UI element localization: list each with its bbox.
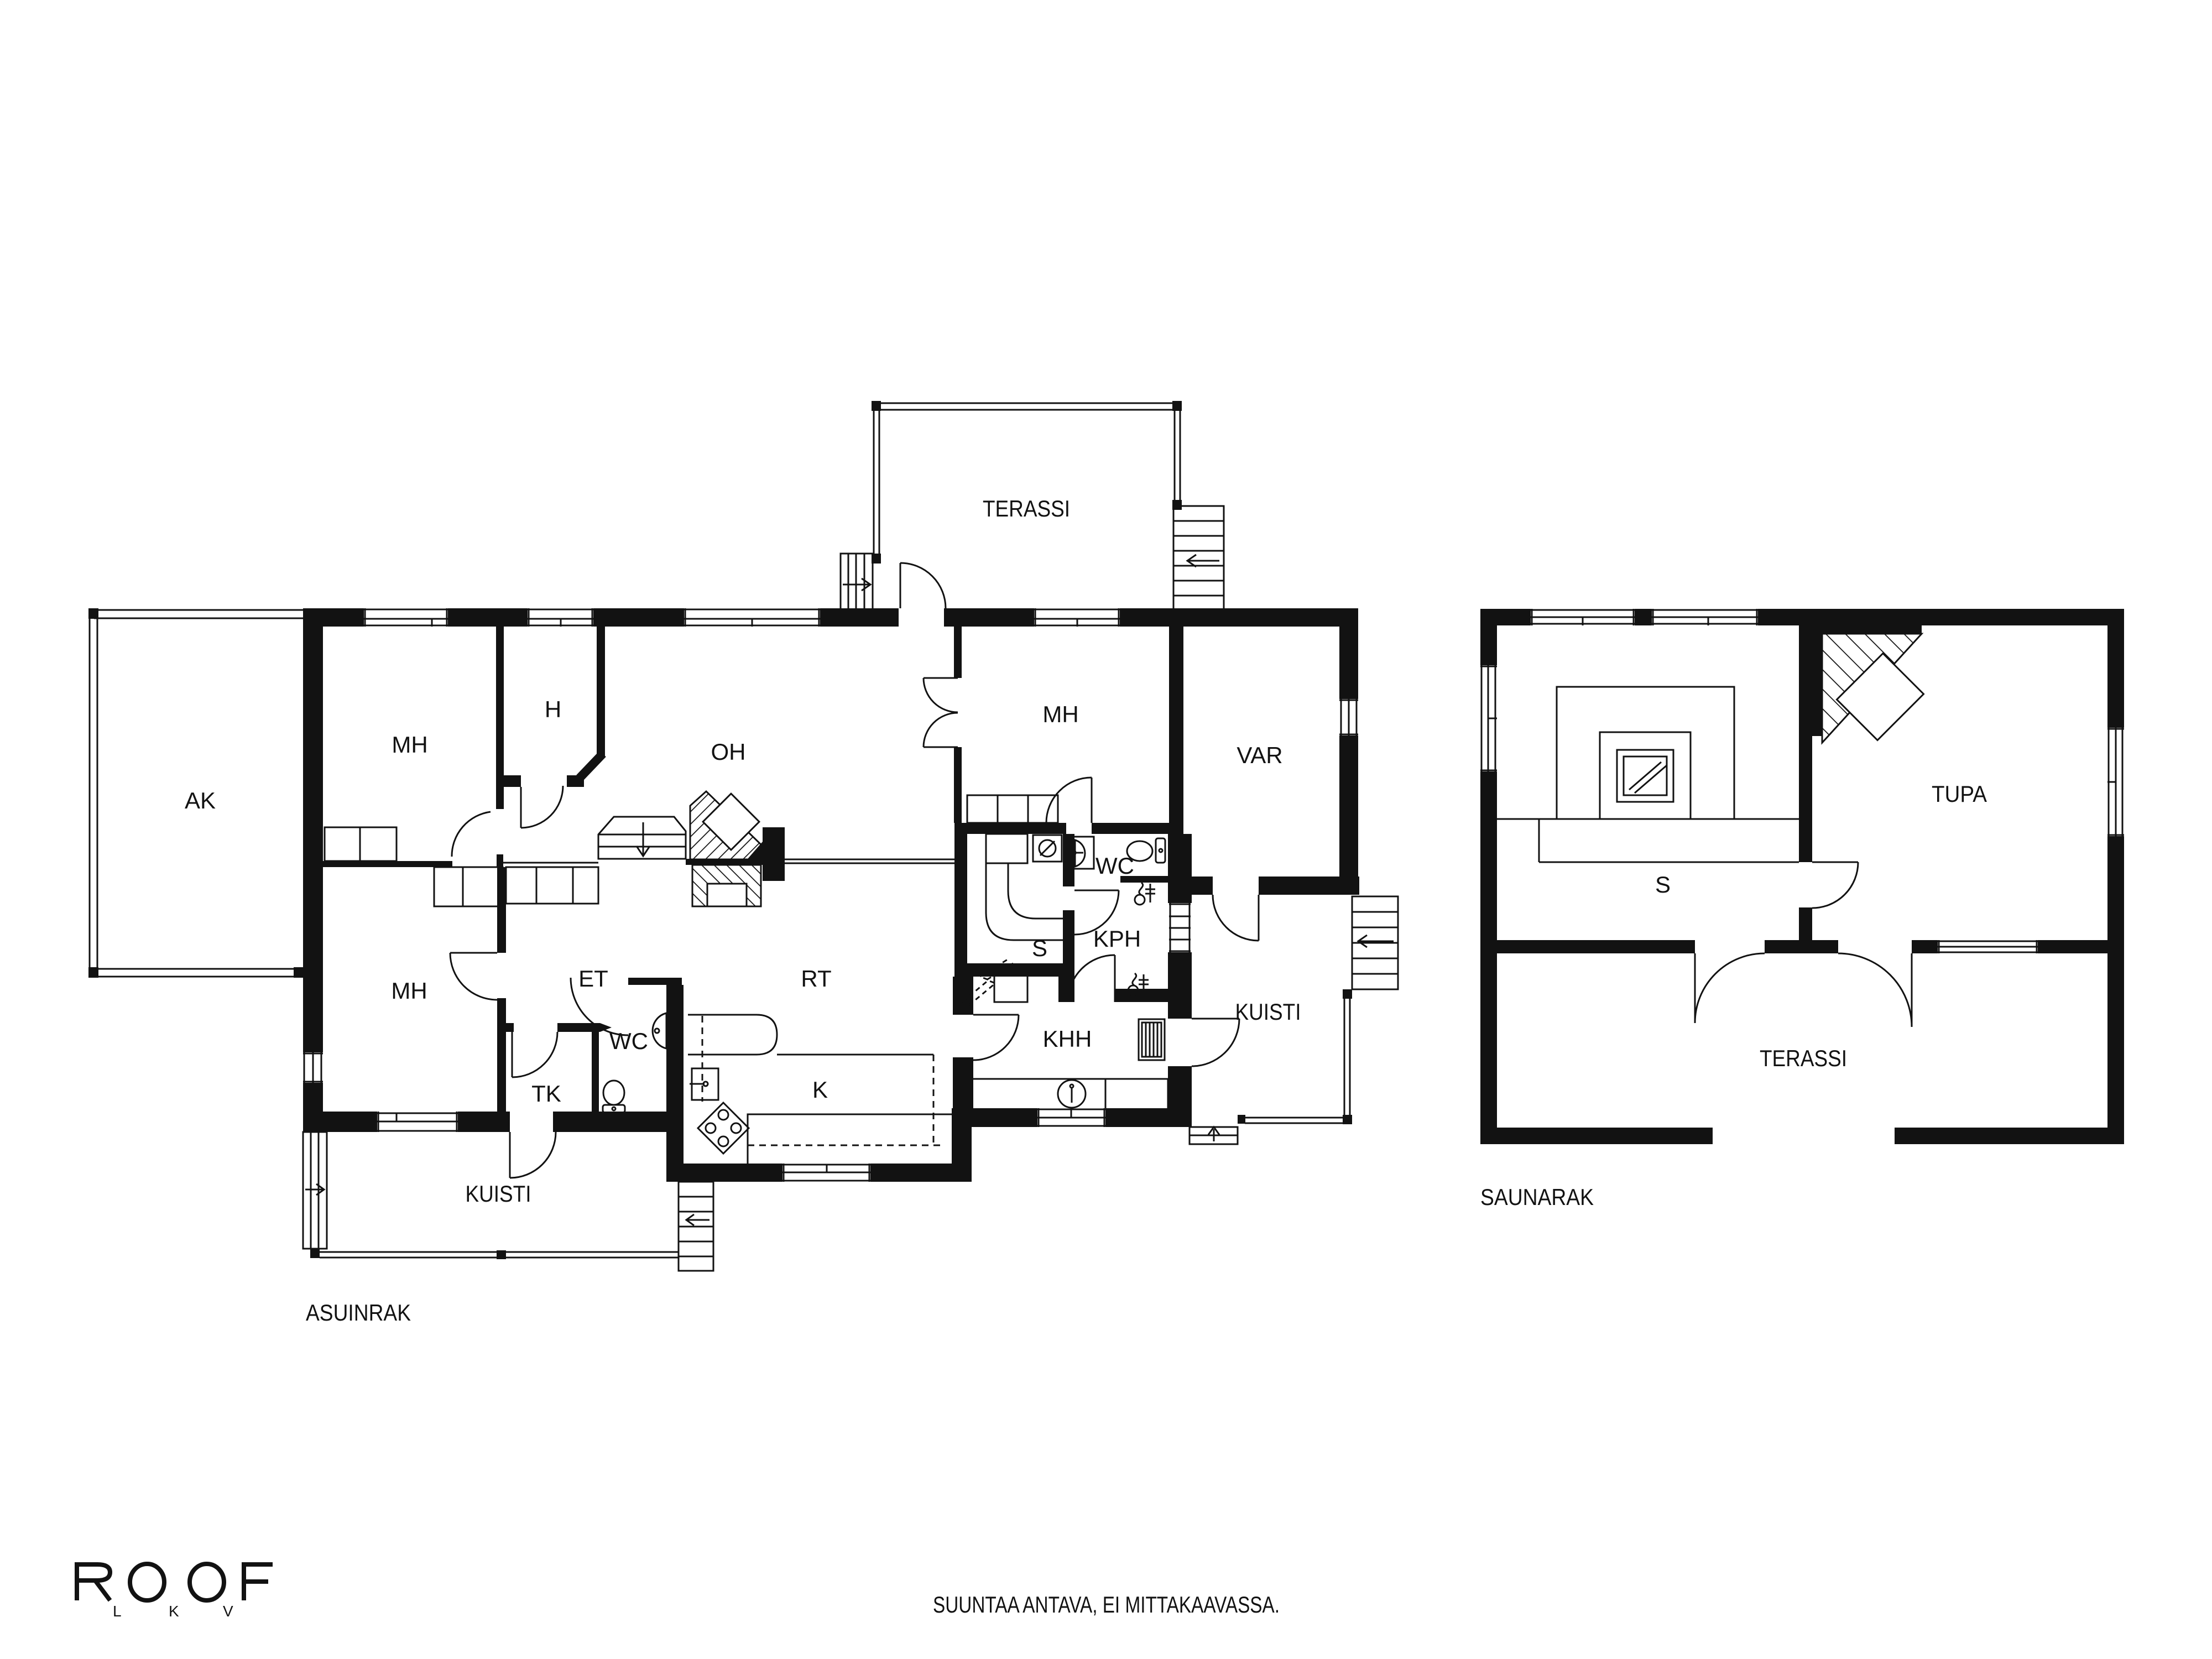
svg-text:WC: WC [1095,853,1134,879]
svg-text:KUISTI: KUISTI [466,1181,531,1207]
svg-text:K: K [169,1603,179,1620]
svg-text:TERASSI: TERASSI [983,495,1070,521]
svg-text:V: V [223,1603,233,1620]
svg-text:MH: MH [391,978,427,1004]
svg-text:S: S [1032,935,1047,961]
svg-text:H: H [545,696,561,722]
svg-text:MH: MH [1042,701,1078,727]
svg-text:KHH: KHH [1043,1026,1092,1052]
svg-text:OH: OH [711,739,746,765]
svg-text:AK: AK [185,787,216,813]
svg-text:SUUNTAA ANTAVA, EI MITTAKAAVAS: SUUNTAA ANTAVA, EI MITTAKAAVASSA. [933,1592,1280,1618]
svg-text:WC: WC [609,1028,648,1054]
svg-text:KPH: KPH [1093,926,1141,952]
svg-text:ET: ET [578,966,608,992]
svg-text:K: K [812,1077,828,1103]
svg-text:TUPA: TUPA [1932,781,1987,807]
svg-text:SAUNARAK: SAUNARAK [1480,1184,1594,1210]
svg-text:ASUINRAK: ASUINRAK [306,1300,411,1326]
svg-text:KUISTI: KUISTI [1235,999,1301,1025]
svg-text:S: S [1655,872,1671,898]
svg-text:MH: MH [392,732,427,758]
svg-text:TERASSI: TERASSI [1760,1045,1847,1071]
svg-text:L: L [113,1603,122,1620]
svg-text:TK: TK [531,1081,561,1107]
svg-text:RT: RT [801,966,831,992]
svg-text:VAR: VAR [1237,742,1282,768]
